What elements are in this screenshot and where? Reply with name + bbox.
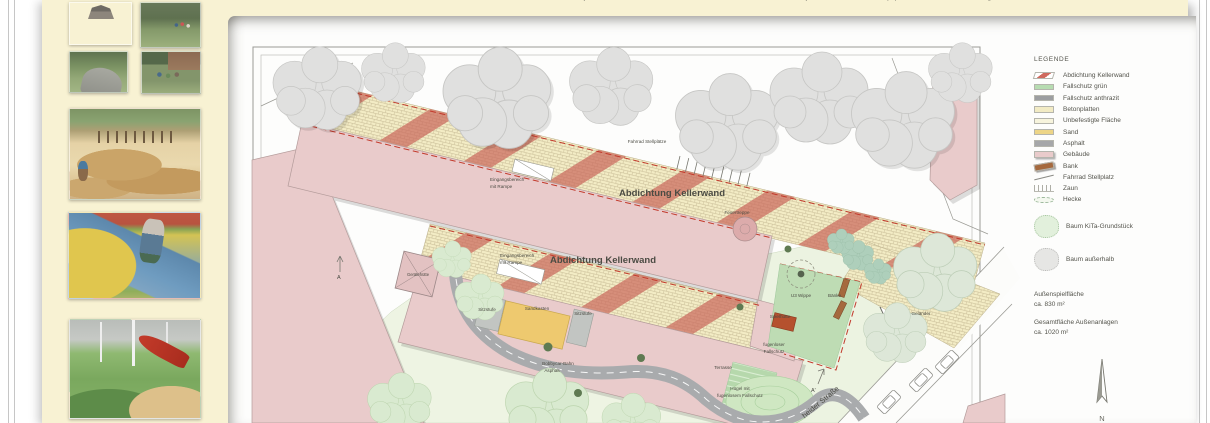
page-border-left-outer: [8, 0, 9, 423]
legend-item-label: Asphalt: [1063, 140, 1085, 147]
legend-item: Zaun: [1034, 183, 1194, 194]
red-slide: [135, 330, 190, 369]
legend-item: Sand: [1034, 126, 1194, 137]
label-spielhuette: Spielhütte: [770, 314, 791, 319]
legend-item-label: Gebäude: [1063, 151, 1090, 158]
legend-item-label: Fallschutz anthrazit: [1063, 95, 1119, 102]
photo-sand-playground: [69, 108, 201, 200]
legend-swatch-icon: [1034, 151, 1054, 158]
label-bobbycar-l1: Bobbycar-Bahn: [542, 361, 574, 366]
legend-swatch-icon: [1034, 140, 1054, 147]
tree-green-icon: [1034, 215, 1059, 238]
legend-item-label: Zaun: [1063, 185, 1078, 192]
section-strip-label: Bobbycar-Bahn: [794, 0, 828, 2]
neighbor-building-south: [963, 394, 1005, 423]
photo-group-meadow: [140, 2, 201, 48]
legend-swatch-icon: [1034, 106, 1054, 113]
photo-rubber-surface: [68, 212, 201, 299]
section-strip-label: Geländer: [505, 0, 526, 2]
section-strip: AGeländerBobbycar-BahnStandrohrSandkaste…: [228, 0, 1188, 16]
legend-item: Hecke: [1034, 194, 1194, 205]
legend-tree-kita: Baum KiTa-Grundstück: [1034, 215, 1194, 239]
label-section-a2: A': [811, 388, 816, 394]
legend-item: Unbefestigte Fläche: [1034, 115, 1194, 126]
legend-item-label: Abdichtung Kellerwand: [1063, 72, 1130, 79]
tree-gray-icon: [1034, 248, 1059, 271]
legend-areas: Außenspielfläche ca. 830 m² Gesamtfläche…: [1034, 290, 1194, 338]
label-bobbycar-l2: Asphalt: [544, 368, 560, 373]
legend-item: Asphalt: [1034, 138, 1194, 149]
legend-tree-outside-label: Baum außerhalb: [1066, 256, 1114, 263]
label-huegel-l2: fugenlosem Fallschutz: [717, 393, 763, 398]
label-baenke: Bänke: [828, 293, 841, 298]
label-eingang1-l2: mit Rampe: [490, 184, 513, 189]
legend-tree-outside: Baum außerhalb: [1034, 248, 1194, 272]
legend-item-label: Unbefestigte Fläche: [1063, 117, 1121, 124]
photo-festival-lawn: [69, 2, 132, 45]
label-abdichtung-kellerwand-1: Abdichtung Kellerwand: [619, 188, 725, 199]
section-strip-label: A': [1064, 0, 1068, 2]
house-shape: [88, 5, 114, 19]
legend-item-label: Sand: [1063, 129, 1078, 136]
legend-item: Bank: [1034, 160, 1194, 171]
label-fugenlos-l1: fugenloser: [763, 342, 785, 347]
child-legs: [138, 218, 166, 265]
gravel-path: [79, 64, 124, 93]
legend-item-label: Bank: [1063, 163, 1078, 170]
legend-item-label: Fallschutz grün: [1063, 83, 1107, 90]
label-u3-wippe: U3 Wippe: [791, 293, 812, 298]
area-gesamt-label: Gesamtfläche Außenanlagen: [1034, 318, 1194, 328]
legend-item: Gebäude: [1034, 149, 1194, 160]
legend-item: Abdichtung Kellerwand: [1034, 70, 1194, 81]
legend-swatch-icon: [1034, 84, 1054, 91]
label-abdichtung-kellerwand-2: Abdichtung Kellerwand: [550, 255, 656, 266]
legend-item-label: Betonplatten: [1063, 106, 1100, 113]
plan-sheet: Fahrrad Stellplätze Eingangsbereich mit …: [228, 16, 1196, 423]
legend-tree-kita-label: Baum KiTa-Grundstück: [1066, 223, 1133, 230]
label-section-a: A: [337, 275, 341, 281]
legend-swatch-icon: [1034, 161, 1055, 171]
label-sitzstufe-1: Sitzstufe: [478, 307, 496, 312]
north-arrow-needle: [1091, 358, 1113, 408]
photo-group-building: [141, 51, 201, 94]
pole: [132, 320, 135, 366]
legend-item-label: Fahrrad Stellplatz: [1063, 174, 1114, 181]
legend-item: Fallschutz anthrazit: [1034, 93, 1194, 104]
section-strip-label: Standrohr: [636, 0, 658, 2]
section-strip-label: Zaun: [1041, 0, 1052, 2]
section-strip-label: Bobbycar-Bahn: [572, 0, 606, 2]
legend-item: Betonplatten: [1034, 104, 1194, 115]
section-strip-label: Sandkasten: [714, 0, 740, 2]
label-eingang2-l2: mit Rampe: [500, 260, 523, 265]
poster-page: AGeländerBobbycar-BahnStandrohrSandkaste…: [0, 0, 1210, 423]
legend-swatch-icon: [1034, 185, 1054, 192]
pole: [100, 322, 102, 362]
section-strip-label: Spielplatte: [884, 0, 907, 2]
section-strip-label: Fallschutzbelag: [956, 0, 991, 2]
feuertreppe-shape: [733, 217, 757, 241]
north-arrow: N: [1090, 358, 1114, 423]
label-huegel-l1: Hügel mit: [730, 386, 750, 391]
photo-path-lawn: [69, 51, 128, 93]
legend-items: Abdichtung Kellerwand Fallschutz grün Fa…: [1034, 70, 1194, 206]
label-gelaender: Geländer: [912, 311, 931, 316]
legend-swatch-icon: [1034, 174, 1054, 180]
brick-building: [168, 52, 201, 70]
label-feuertreppe: Feuertreppe: [724, 210, 749, 215]
page-border-left-inner: [14, 0, 15, 423]
legend-swatch-icon: [1033, 72, 1055, 79]
legend-title: LEGENDE: [1034, 56, 1194, 63]
legend: LEGENDE Abdichtung Kellerwand Fallschutz…: [1034, 56, 1194, 423]
section-strip-label: A: [423, 0, 426, 2]
area-gesamt-value: ca. 1020 m²: [1034, 328, 1194, 338]
legend-item-label: Hecke: [1063, 196, 1081, 203]
child-figure: [78, 161, 88, 181]
label-sandkasten: Sandkasten: [525, 306, 550, 311]
page-border-right-outer: [1206, 0, 1207, 423]
legend-item: Fahrrad Stellplatz: [1034, 172, 1194, 183]
label-eingang2-l1: Eingangsbereich: [500, 253, 535, 258]
label-fahrrad-stellplaetze: Fahrrad Stellplätze: [628, 139, 667, 144]
label-sitzstufe-2: Sitzstufe: [574, 311, 592, 316]
label-terrasse: Terrasse: [714, 365, 732, 370]
label-geraetehuette: Gerätehütte: [407, 272, 430, 277]
legend-swatch-icon: [1034, 95, 1054, 102]
page-border-right-inner: [1199, 0, 1200, 423]
legend-swatch-icon: [1034, 118, 1054, 125]
wood-posts: [98, 131, 178, 143]
legend-swatch-icon: [1034, 197, 1054, 204]
north-label: N: [1090, 414, 1114, 423]
legend-swatch-icon: [1034, 129, 1054, 136]
area-spielflaeche-label: Außenspielfläche: [1034, 290, 1194, 300]
label-fugenlos-l2: Fallschutz: [764, 349, 785, 354]
photo-green-mounds-slide: [69, 319, 201, 419]
label-eingang1-l1: Eingangsbereich: [490, 177, 525, 182]
legend-item: Fallschutz grün: [1034, 81, 1194, 92]
area-spielflaeche-value: ca. 830 m²: [1034, 300, 1194, 310]
